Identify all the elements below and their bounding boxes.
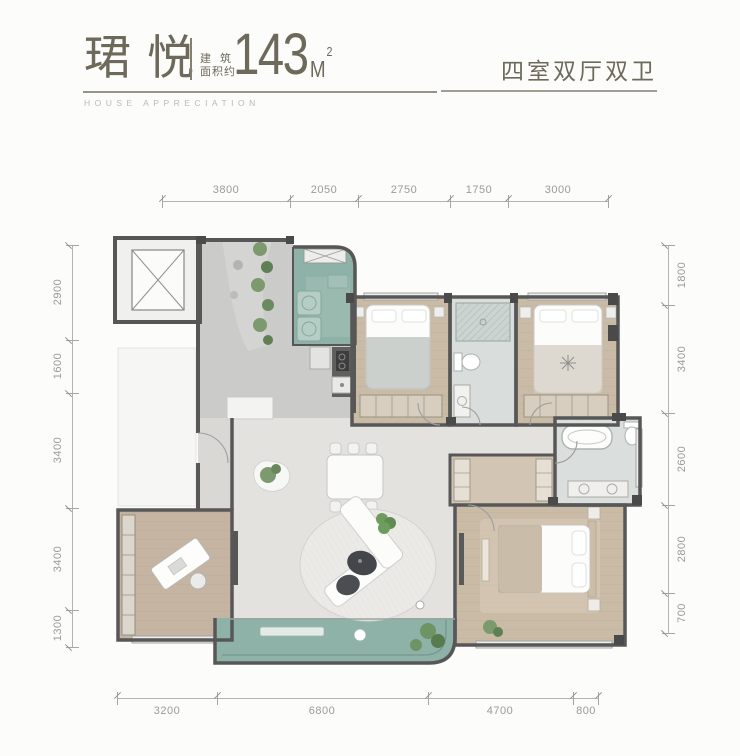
dim-label: 1800: [676, 262, 688, 288]
closet-left: [454, 459, 470, 501]
dim-label: 3200: [154, 705, 180, 717]
dim-label: 4700: [487, 705, 513, 717]
dim-label: 3400: [52, 437, 64, 463]
area-number: 143: [233, 30, 307, 80]
dim-top-line: [162, 201, 608, 202]
bed-bench: [482, 539, 489, 581]
dim-label: 1600: [52, 353, 64, 379]
dim-label: 2050: [311, 184, 337, 196]
dim-label: 3000: [545, 184, 571, 196]
bathtub: [562, 425, 612, 449]
dim-label: 6800: [309, 705, 335, 717]
dim-left-line: [72, 245, 73, 647]
fridge: [310, 347, 330, 369]
dim-label: 2900: [52, 279, 64, 305]
layout-type: 四室双厅双卫: [501, 52, 657, 86]
area-unit: M: [310, 58, 326, 80]
area-value: 143 M 2: [233, 30, 332, 80]
header-rule-left: [83, 91, 437, 93]
dim-label: 1300: [52, 615, 64, 641]
floor-plan: [110, 233, 645, 668]
dim-bottom-line: [117, 698, 598, 699]
double-vanity: [568, 481, 628, 497]
bathroom1-vanity: [454, 385, 470, 417]
dim-label: 2600: [676, 446, 688, 472]
bedroom3-wardrobe: [524, 395, 608, 417]
area-exponent: 2: [326, 46, 332, 58]
dim-label: 3400: [676, 346, 688, 372]
header-rule-right: [441, 90, 657, 92]
balcony-table: [354, 629, 366, 641]
toilet: [462, 354, 480, 370]
floor-lamp: [416, 601, 424, 609]
kitchen-island: [227, 397, 273, 419]
dim-right-line: [668, 245, 669, 633]
tagline: HOUSE APPRECIATION: [84, 98, 260, 108]
master-tv: [459, 533, 464, 585]
dim-label: 2800: [676, 536, 688, 562]
bed-flower-decor: [560, 355, 576, 371]
hallway-floor: [198, 418, 232, 510]
floorplan-flyer: { "header": { "project_name": "珺悦", "are…: [0, 0, 740, 756]
desk-chair: [190, 573, 206, 589]
bedroom3: [520, 293, 616, 417]
dim-label: 3400: [52, 546, 64, 572]
dim-label: 700: [676, 603, 688, 623]
balcony-bench: [260, 627, 324, 636]
dim-label: 3800: [213, 184, 239, 196]
dim-label: 800: [576, 705, 596, 717]
closet-right: [536, 459, 552, 501]
dim-label: 1750: [466, 184, 492, 196]
elevator-shaft: [115, 238, 200, 322]
dim-label: 2750: [391, 184, 417, 196]
entry-porch: [118, 348, 196, 506]
bedroom2-wardrobe: [360, 395, 442, 417]
dining-table: [327, 455, 383, 499]
title-divider: [190, 38, 192, 80]
